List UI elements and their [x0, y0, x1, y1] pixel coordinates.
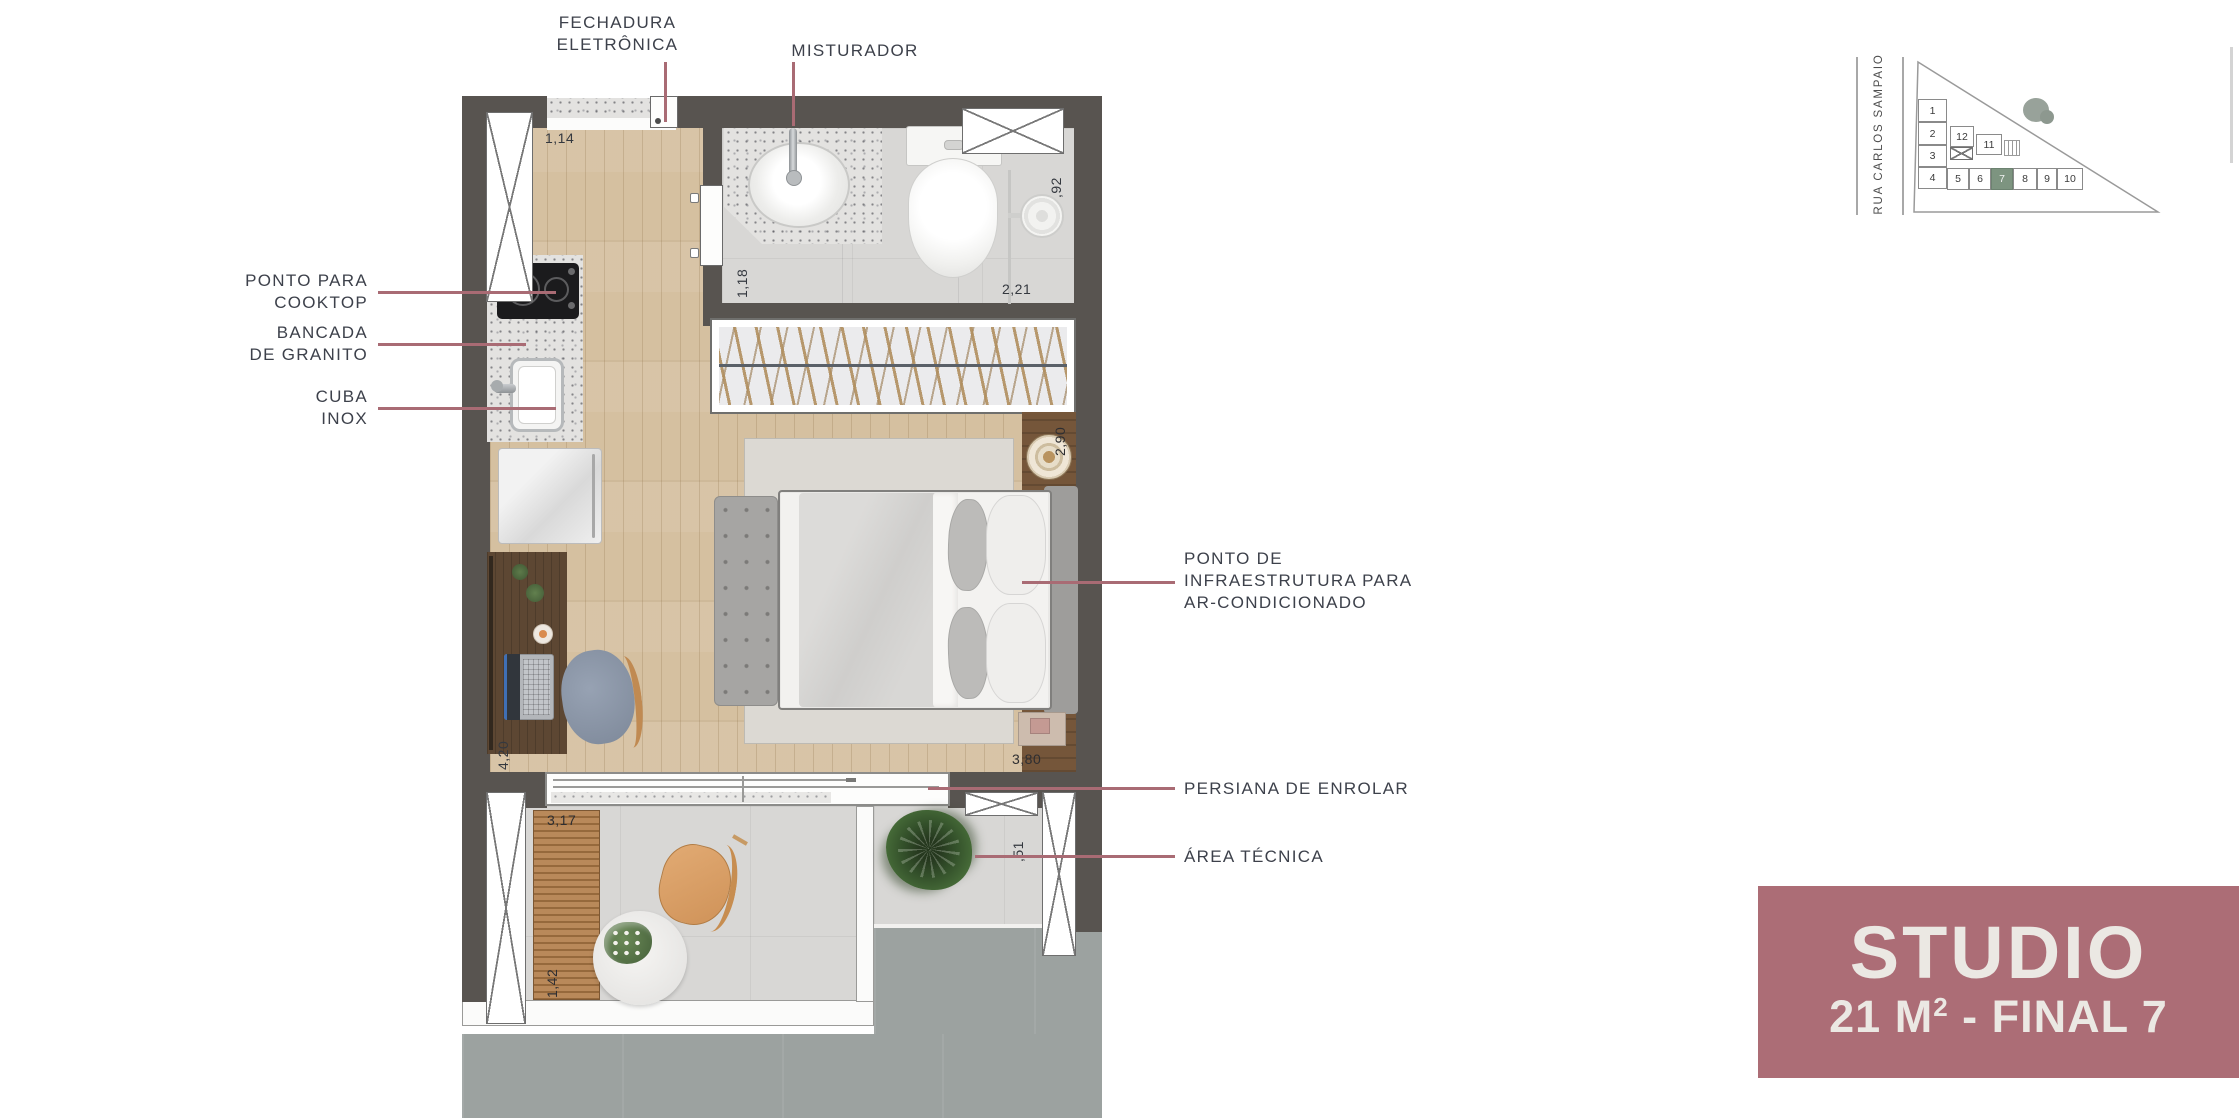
keyplan-unit-7-highlighted: 7 — [1991, 168, 2013, 190]
left-shaft-top — [486, 112, 533, 302]
callout-ac-line2: INFRAESTRUTURA PARA — [1184, 570, 1412, 592]
tech-area-shaft-vertical — [1042, 792, 1076, 956]
callout-fechadura-line2: ELETRÔNICA — [500, 34, 735, 56]
keyplan-unit-12: 12 — [1950, 126, 1974, 147]
leader-ac — [1022, 581, 1175, 584]
keyplan-street-line — [1902, 57, 1904, 215]
dim-bathroom-recess: ,92 — [1048, 166, 1064, 198]
callout-area-tecnica: ÁREA TÉCNICA — [1184, 846, 1324, 868]
dim-closet-wall: 2,90 — [1052, 414, 1068, 456]
dim-bedroom-length: 3,80 — [1012, 751, 1041, 767]
toilet-bowl — [908, 158, 998, 278]
keyplan-unit-1: 1 — [1918, 99, 1947, 122]
cooktop-control — [568, 268, 575, 275]
closet-rail — [719, 364, 1067, 367]
window-sill-granite — [551, 792, 831, 803]
callout-bancada-line1: BANCADA — [180, 322, 368, 344]
bathroom-door-handle — [690, 193, 699, 203]
callout-ac: PONTO DE INFRAESTRUTURA PARA AR-CONDICIO… — [1184, 548, 1412, 614]
keyplan-stairs — [2004, 140, 2020, 156]
callout-cuba-line2: INOX — [180, 408, 368, 430]
callout-misturador: MISTURADOR — [770, 40, 940, 62]
callout-ac-line3: AR-CONDICIONADO — [1184, 592, 1412, 614]
unit-banner: STUDIO 21 M2 - FINAL 7 — [1758, 886, 2239, 1078]
laptop-keyboard — [523, 659, 550, 715]
dim-balcony-depth: 1,42 — [544, 952, 560, 998]
unit-banner-title: STUDIO — [1850, 918, 2148, 988]
wall-right — [1074, 96, 1102, 932]
dim-bathroom-width: 1,18 — [734, 258, 750, 298]
keyplan-unit-5: 5 — [1947, 168, 1969, 190]
unit-area-exponent: 2 — [1933, 992, 1948, 1022]
window-divider — [742, 776, 744, 802]
callout-fechadura-line1: FECHADURA — [500, 12, 735, 34]
bed-pillow — [986, 603, 1046, 703]
unit-banner-area: 21 M2 - FINAL 7 — [1829, 994, 2168, 1046]
callout-area-tecnica-text: ÁREA TÉCNICA — [1184, 846, 1324, 868]
callout-cuba: CUBA INOX — [180, 386, 368, 430]
toilet-flush-button — [944, 140, 964, 150]
callout-persiana-text: PERSIANA DE ENROLAR — [1184, 778, 1409, 800]
floor-plan-page: 1,14 1,18 2,21 ,92 2,90 3,80 4,20 3,17 1… — [0, 0, 2239, 1118]
dim-entry-hall-width: 1,14 — [545, 130, 574, 146]
cooktop-control — [568, 302, 575, 309]
entry-hall-granite — [547, 98, 650, 120]
page-edge-line — [2230, 47, 2233, 163]
keyplan-unit-6: 6 — [1969, 168, 1991, 190]
table-flower-dots — [610, 928, 644, 956]
callout-persiana: PERSIANA DE ENROLAR — [1184, 778, 1409, 800]
nightstand-decor — [1030, 718, 1050, 734]
window-track — [553, 786, 939, 788]
leader-bancada — [378, 343, 526, 346]
keyplan-street-name: RUA CARLOS SAMPAIO — [1873, 34, 1885, 234]
bathroom-window-shaft — [962, 108, 1064, 154]
bed-bench — [714, 496, 778, 706]
callout-fechadura: FECHADURA ELETRÔNICA — [500, 12, 735, 56]
left-shaft-bottom — [486, 792, 526, 1024]
leader-misturador — [792, 62, 795, 126]
tech-area-shaft-horizontal — [965, 792, 1038, 816]
keyplan-unit-4: 4 — [1918, 167, 1947, 189]
cooktop-burner — [544, 277, 569, 302]
kitchen-faucet-base — [491, 380, 503, 392]
unit-area-value: 21 M — [1829, 991, 1933, 1042]
callout-bancada: BANCADA DE GRANITO — [180, 322, 368, 366]
callout-cooktop-line2: COOKTOP — [180, 292, 368, 314]
keyplan-shaft — [1950, 147, 1973, 160]
candle-flame — [539, 630, 547, 638]
tech-area-plant-leaves — [898, 820, 960, 878]
callout-cuba-line1: CUBA — [180, 386, 368, 408]
callout-misturador-text: MISTURADOR — [770, 40, 940, 62]
keyplan-unit-8: 8 — [2013, 168, 2037, 190]
dim-room-depth: 4,20 — [495, 726, 511, 770]
window-latch — [846, 778, 856, 782]
keyplan-unit-10: 10 — [2057, 168, 2083, 190]
sink-faucet-base — [786, 170, 802, 186]
callout-cooktop: PONTO PARA COOKTOP — [180, 270, 368, 314]
callout-bancada-line2: DE GRANITO — [180, 344, 368, 366]
desk-rail — [489, 556, 493, 750]
keyplan-unit-9: 9 — [2037, 168, 2057, 190]
unit-area-detail: - FINAL 7 — [1949, 991, 2168, 1042]
bed-pillow — [986, 495, 1046, 595]
fridge — [498, 448, 602, 544]
fridge-door-edge — [592, 454, 595, 538]
desk-plant — [526, 584, 544, 602]
bathroom-door-handle — [690, 248, 699, 258]
exterior-slab-bottom — [462, 1034, 1102, 1118]
desk — [487, 552, 567, 754]
kitchen-sink-basin — [518, 366, 556, 424]
callout-ac-line1: PONTO DE — [1184, 548, 1412, 570]
dim-balcony-width: 3,17 — [547, 812, 576, 828]
keyplan-unit-11: 11 — [1976, 134, 2002, 155]
leader-persiana — [928, 787, 1175, 790]
keyplan-unit-2: 2 — [1918, 122, 1947, 145]
shower-head — [1020, 194, 1064, 238]
leader-cuba — [378, 407, 556, 410]
balcony-divider-wall — [856, 806, 874, 1002]
bathroom-sink — [748, 142, 850, 228]
dim-bathroom-length: 2,21 — [1002, 281, 1031, 297]
leader-area-tecnica — [975, 855, 1175, 858]
window-track — [553, 779, 851, 781]
laptop-screen — [504, 654, 520, 720]
bathroom-door-leaf — [700, 185, 723, 266]
entry-door-lock — [655, 118, 661, 124]
keyplan-unit-3: 3 — [1918, 145, 1947, 167]
keyplan-street-line — [1856, 57, 1858, 215]
keyplan-lot-outline — [1906, 50, 2186, 222]
callout-cooktop-line1: PONTO PARA — [180, 270, 368, 292]
bed-duvet — [799, 493, 937, 707]
desk-plant — [512, 564, 528, 580]
leader-cooktop — [378, 291, 556, 294]
leader-fechadura — [664, 62, 667, 122]
